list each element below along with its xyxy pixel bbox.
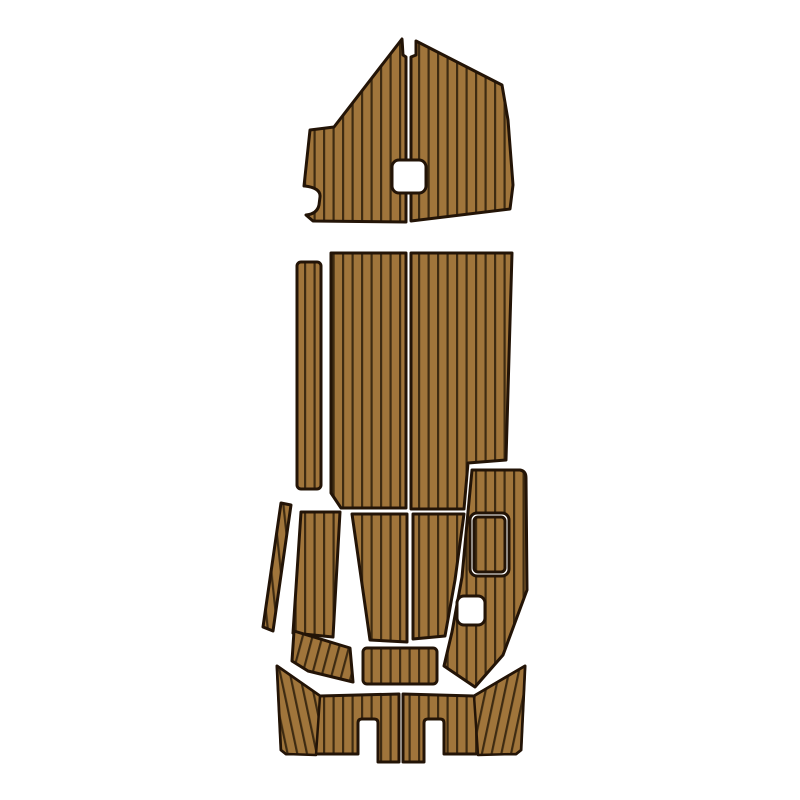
cockpit-port-side-pad [293, 512, 340, 637]
main-deck-left-half [331, 253, 406, 508]
transom-center-pad [363, 648, 437, 684]
mid-port-runner-pad [297, 262, 321, 489]
product-image-stage [0, 0, 800, 800]
bow-pad-hatch-hole [392, 160, 426, 193]
boat-deck-pad-set-image [0, 0, 800, 800]
starboard-notch-cutout [457, 596, 485, 625]
starboard-hatch-pad [474, 517, 505, 572]
